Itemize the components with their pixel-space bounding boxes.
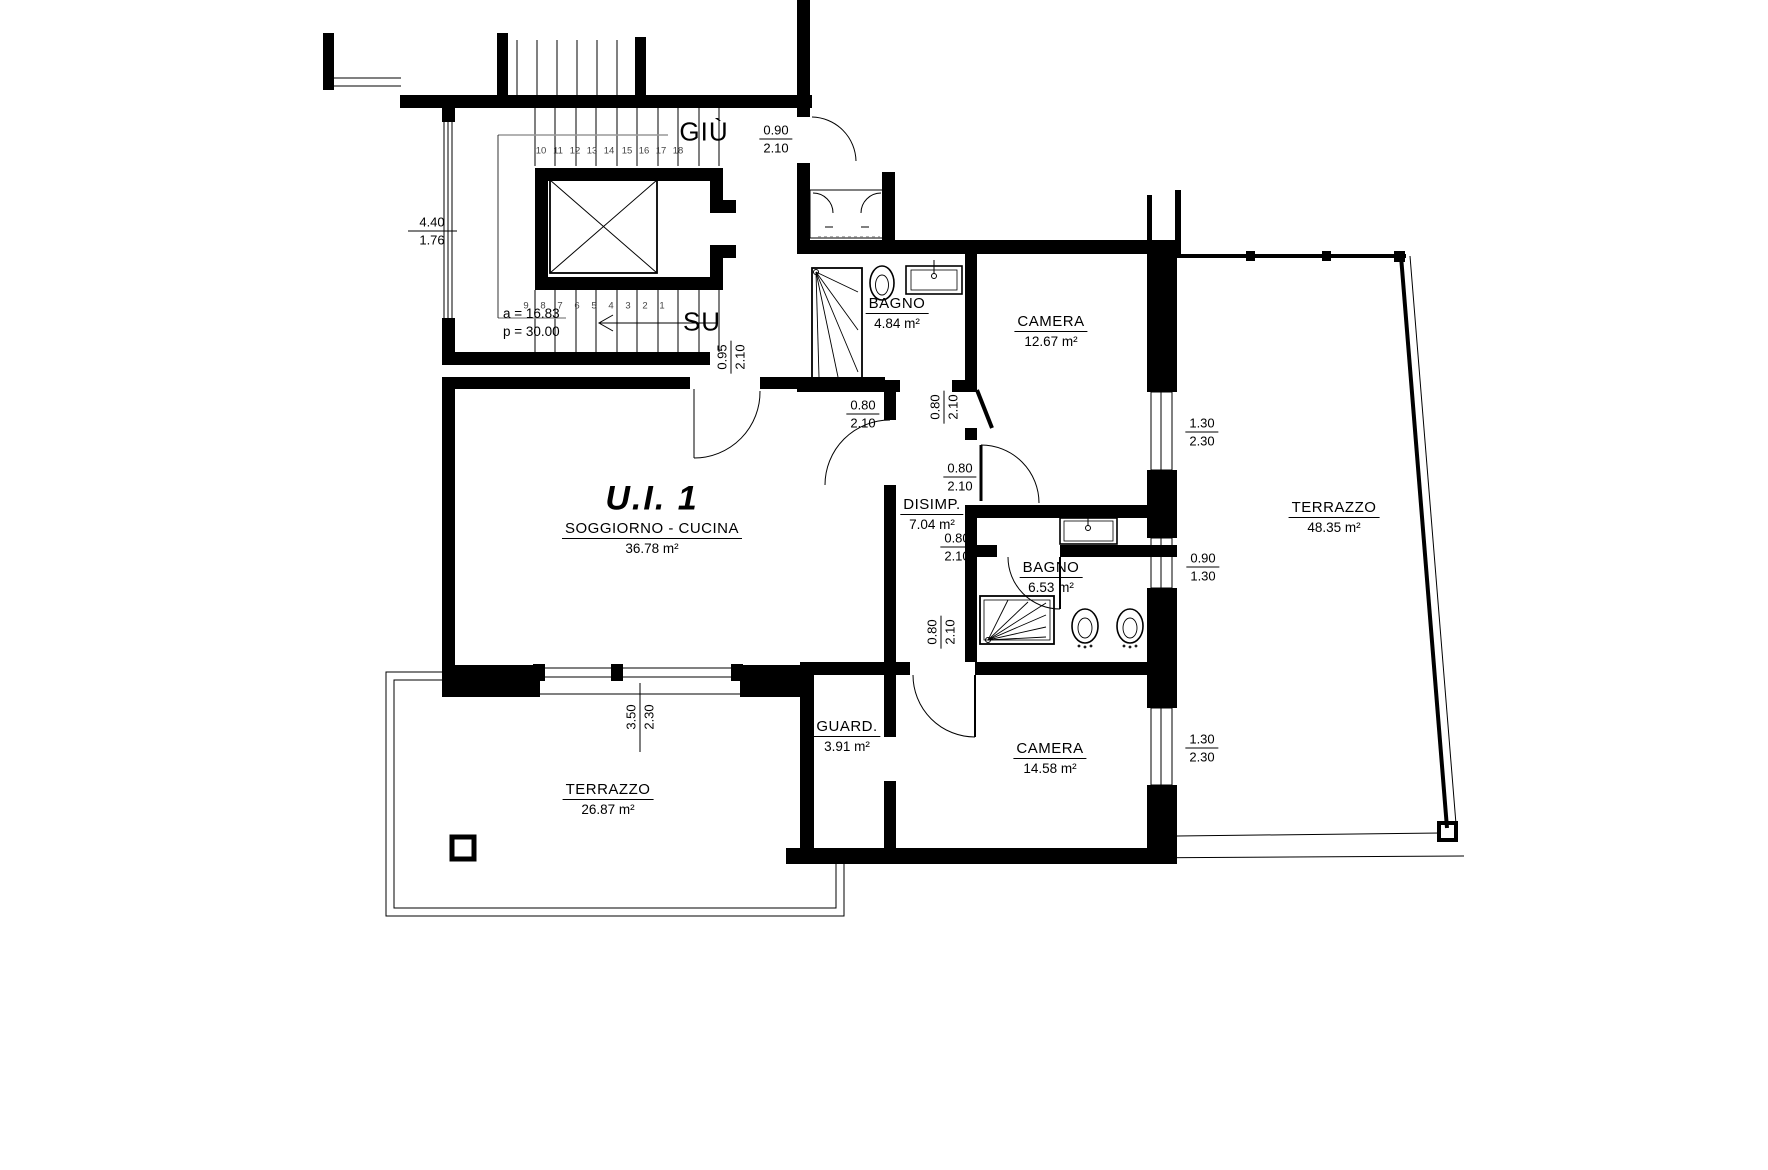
step-number: 9	[523, 301, 528, 312]
dimension-label-door-bagno2: 0.80 2.10	[940, 531, 973, 564]
room-label-soggiorno: SOGGIORNO - CUCINA 36.78 m²	[562, 520, 742, 556]
floor-plan-drawing	[0, 0, 1768, 1170]
room-label-camera-1: CAMERA 12.67 m²	[1014, 313, 1087, 349]
stair-direction-giu: GIÙ	[679, 117, 728, 148]
room-label-bagno-1: BAGNO 4.84 m²	[866, 295, 929, 331]
dimension-label-window-left: 4.40 1.76	[415, 215, 448, 248]
room-area: 36.78 m²	[562, 539, 742, 556]
room-label-guardaroba: GUARD. 3.91 m²	[813, 718, 880, 754]
step-number: 11	[553, 146, 563, 157]
room-name: SOGGIORNO - CUCINA	[562, 520, 742, 539]
dimension-label-window-bagno2: 0.90 1.30	[1186, 551, 1219, 584]
step-number: 7	[557, 301, 562, 312]
stair-note-tread: a = 16.83	[503, 306, 560, 321]
room-label-bagno-2: BAGNO 6.53 m²	[1020, 559, 1083, 595]
step-number: 13	[587, 146, 598, 157]
step-number: 8	[540, 301, 545, 312]
dimension-label-window-camera2: 1.30 2.30	[1185, 732, 1218, 765]
room-label-terrazzo-2: TERRAZZO 26.87 m²	[563, 781, 654, 817]
step-number: 16	[639, 146, 650, 157]
step-number: 3	[625, 301, 630, 312]
dimension-label-door-camera1-b: 0.80 2.10	[943, 461, 976, 494]
unit-label: U.I. 1	[605, 480, 698, 519]
dimension-label-entry-door: 0.90 2.10	[759, 123, 792, 156]
room-label-disimpegno: DISIMP. 7.04 m²	[900, 496, 963, 532]
step-number: 5	[591, 301, 596, 312]
step-number: 10	[536, 146, 547, 157]
step-number: 2	[642, 301, 647, 312]
stair-direction-su: SU	[683, 307, 721, 338]
room-label-camera-2: CAMERA 14.58 m²	[1013, 740, 1086, 776]
step-number: 4	[608, 301, 613, 312]
stair-note-riser: p = 30.00	[503, 324, 560, 339]
step-number: 17	[656, 146, 667, 157]
step-number: 12	[570, 146, 581, 157]
step-number: 15	[622, 146, 633, 157]
dimension-label-door-camera1-a: 0.80 2.10	[928, 390, 961, 423]
step-number: 14	[604, 146, 615, 157]
step-number: 6	[574, 301, 579, 312]
dimension-label-door-camera2: 0.80 2.10	[925, 615, 958, 648]
room-label-terrazzo-1: TERRAZZO 48.35 m²	[1289, 499, 1380, 535]
dimension-label-living-opening: 0.95 2.10	[715, 340, 748, 373]
step-number: 18	[673, 146, 684, 157]
dimension-label-window-living: 3.50 2.30	[624, 700, 657, 733]
dimension-label-door-disimp: 0.80 2.10	[846, 398, 879, 431]
step-number: 1	[659, 301, 664, 312]
dimension-label-window-camera1: 1.30 2.30	[1185, 416, 1218, 449]
floor-plan: GIÙ SU a = 16.83 p = 30.00 10 11 12 13 1…	[0, 0, 1768, 1170]
